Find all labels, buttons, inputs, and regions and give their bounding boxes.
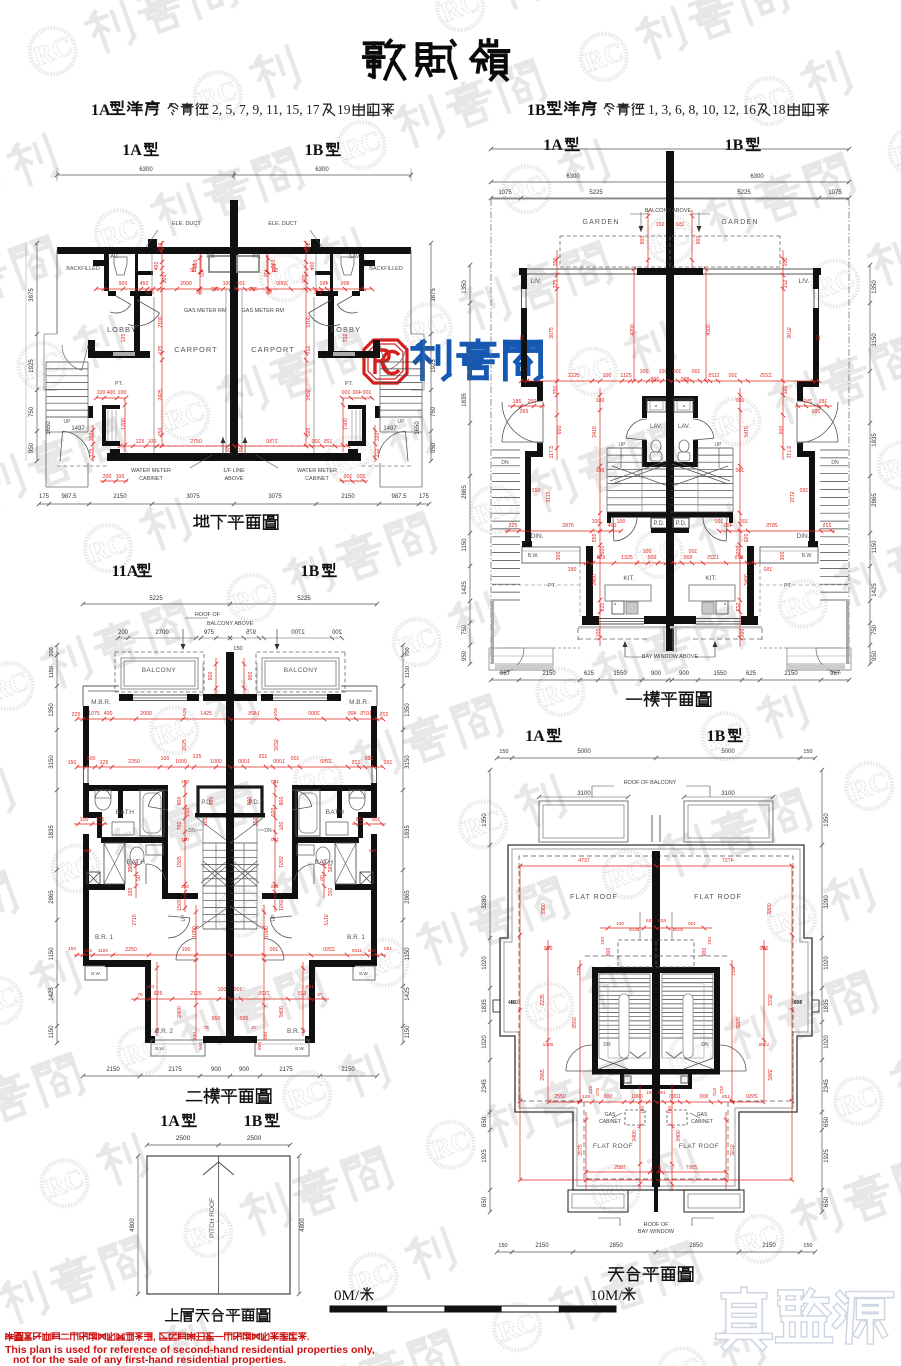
svg-text:2100: 2100 — [158, 316, 164, 328]
svg-text:100: 100 — [192, 1032, 198, 1040]
svg-text:3115: 3115 — [788, 491, 794, 502]
svg-text:BAY WINDOW ABOVE: BAY WINDOW ABOVE — [642, 654, 699, 660]
svg-text:625: 625 — [154, 991, 163, 997]
svg-text:3150: 3150 — [405, 755, 411, 769]
svg-text:1038: 1038 — [672, 927, 683, 933]
svg-text:900: 900 — [694, 236, 700, 245]
svg-text:2225: 2225 — [760, 373, 772, 379]
svg-text:PITCH ROOF: PITCH ROOF — [209, 1198, 216, 1238]
svg-text:BATH: BATH — [116, 809, 135, 816]
svg-text:200: 200 — [357, 474, 366, 480]
svg-text:125: 125 — [576, 968, 582, 976]
svg-text:125: 125 — [136, 439, 145, 445]
svg-text:125: 125 — [356, 817, 365, 823]
svg-text:117.5: 117.5 — [549, 446, 555, 459]
svg-text:125: 125 — [341, 334, 347, 343]
svg-text:1150: 1150 — [49, 666, 55, 678]
svg-text:650: 650 — [824, 1116, 830, 1127]
svg-text:225: 225 — [509, 523, 518, 529]
svg-text:LAV.: LAV. — [107, 254, 118, 260]
svg-text:PT.: PT. — [345, 381, 353, 387]
svg-text:.: . — [307, 1332, 310, 1342]
svg-text:75: 75 — [814, 335, 820, 341]
svg-text:100: 100 — [688, 921, 696, 927]
svg-text:1925: 1925 — [482, 1149, 488, 1163]
svg-text:175: 175 — [146, 290, 155, 296]
svg-text:2150: 2150 — [535, 1243, 549, 1249]
svg-text:KIT.: KIT. — [705, 575, 716, 582]
svg-text:900: 900 — [700, 1094, 709, 1100]
svg-text:UP: UP — [398, 419, 406, 425]
svg-text:CARPORT: CARPORT — [251, 345, 295, 354]
svg-text:2575: 2575 — [728, 1144, 734, 1156]
svg-text:450: 450 — [320, 281, 329, 287]
svg-text:1A: 1A — [91, 102, 111, 119]
svg-text:100: 100 — [689, 549, 698, 555]
svg-text:1325: 1325 — [621, 555, 633, 561]
svg-text:0M/: 0M/ — [334, 1288, 360, 1304]
svg-text:1650: 1650 — [46, 421, 52, 435]
svg-text:400: 400 — [724, 523, 733, 529]
svg-text:P.D.: P.D. — [249, 800, 260, 806]
svg-text:150: 150 — [499, 749, 508, 755]
svg-text:1075: 1075 — [498, 190, 512, 196]
svg-text:UP: UP — [181, 914, 187, 922]
svg-text:300: 300 — [300, 275, 306, 284]
svg-text:DIN.: DIN. — [797, 533, 810, 540]
svg-text:1325: 1325 — [707, 555, 719, 561]
svg-text:900: 900 — [651, 671, 662, 677]
svg-text:100: 100 — [118, 390, 127, 396]
svg-text:1000: 1000 — [631, 1094, 643, 1100]
svg-text:3075: 3075 — [268, 494, 282, 500]
svg-text:1565: 1565 — [277, 856, 283, 868]
svg-text:1B: 1B — [305, 142, 324, 159]
svg-text:1038: 1038 — [629, 927, 640, 933]
svg-text:100: 100 — [181, 884, 189, 890]
svg-text:100: 100 — [116, 474, 125, 480]
svg-text:150: 150 — [89, 433, 95, 442]
svg-text:100: 100 — [673, 369, 682, 375]
svg-text:265: 265 — [520, 409, 529, 415]
svg-text:2965: 2965 — [766, 1069, 772, 1081]
svg-text:2235: 2235 — [540, 994, 546, 1006]
svg-text:2550: 2550 — [746, 1094, 758, 1100]
svg-text:2150: 2150 — [762, 1243, 776, 1249]
svg-text:125: 125 — [203, 818, 209, 827]
svg-text:800: 800 — [700, 948, 706, 957]
svg-text:150: 150 — [68, 760, 77, 766]
svg-text:625: 625 — [298, 991, 307, 997]
svg-text:1835: 1835 — [49, 825, 55, 839]
svg-text:1425: 1425 — [405, 987, 411, 1001]
svg-text:1350: 1350 — [49, 703, 55, 717]
svg-text:175: 175 — [39, 494, 50, 500]
svg-text:150: 150 — [803, 1243, 812, 1249]
svg-text:ROOF OF BALCONY: ROOF OF BALCONY — [624, 780, 677, 786]
svg-text:125: 125 — [304, 346, 310, 355]
svg-text:2250: 2250 — [128, 759, 140, 765]
svg-text:100: 100 — [666, 1106, 672, 1114]
svg-text:950: 950 — [212, 1016, 221, 1022]
svg-text:P.D.: P.D. — [252, 254, 261, 260]
svg-text:5225: 5225 — [589, 190, 603, 196]
svg-text:5000: 5000 — [721, 749, 735, 755]
svg-text:600: 600 — [557, 426, 563, 435]
svg-text:200: 200 — [331, 630, 342, 636]
svg-text:125: 125 — [730, 968, 736, 976]
svg-text:P.D: P.D — [201, 800, 211, 806]
svg-text:1125: 1125 — [708, 373, 719, 379]
svg-text:UP: UP — [271, 914, 277, 922]
svg-text:2575: 2575 — [578, 1144, 584, 1156]
svg-text:900: 900 — [246, 672, 252, 681]
svg-text:1650: 1650 — [415, 421, 421, 435]
svg-text:B.R. 1: B.R. 1 — [347, 934, 365, 941]
svg-text:750: 750 — [462, 624, 468, 635]
svg-text:1835: 1835 — [824, 999, 830, 1013]
svg-text:2000: 2000 — [276, 281, 288, 287]
svg-text:150: 150 — [656, 222, 665, 228]
svg-text:100: 100 — [640, 369, 649, 375]
svg-text:2250: 2250 — [320, 759, 332, 765]
svg-text:700: 700 — [405, 647, 411, 656]
svg-text:KIT.: KIT. — [623, 575, 634, 582]
svg-text:2425: 2425 — [304, 389, 310, 401]
svg-text:450: 450 — [508, 1000, 517, 1006]
svg-text:700: 700 — [277, 822, 283, 831]
svg-text:ELE. DUCT: ELE. DUCT — [172, 221, 201, 227]
svg-text:1050: 1050 — [192, 926, 198, 938]
svg-text:2850: 2850 — [609, 1243, 623, 1249]
svg-text:900: 900 — [211, 1067, 222, 1073]
svg-text:DN: DN — [603, 1042, 611, 1048]
svg-text:1350: 1350 — [824, 813, 830, 827]
svg-text:325: 325 — [84, 948, 92, 954]
svg-text:2150: 2150 — [113, 494, 127, 500]
svg-text:225: 225 — [380, 712, 389, 718]
svg-text:3900: 3900 — [765, 903, 771, 915]
svg-text:100: 100 — [80, 817, 89, 823]
svg-text:625: 625 — [735, 555, 744, 561]
svg-text:ABOVE: ABOVE — [225, 476, 244, 482]
svg-text:3075: 3075 — [186, 494, 200, 500]
svg-text:950: 950 — [462, 650, 468, 661]
svg-text:500: 500 — [684, 555, 693, 561]
svg-text:600: 600 — [777, 426, 783, 435]
svg-text:1835: 1835 — [405, 825, 411, 839]
svg-text:1125: 1125 — [620, 373, 631, 379]
svg-text:100: 100 — [270, 947, 279, 953]
svg-text:50: 50 — [262, 271, 268, 277]
svg-text:900: 900 — [679, 671, 690, 677]
svg-text:75: 75 — [251, 1025, 257, 1031]
svg-text:1075: 1075 — [88, 711, 100, 717]
svg-text:50: 50 — [136, 875, 142, 881]
svg-text:,: , — [153, 1332, 156, 1342]
svg-text:1A: 1A — [525, 728, 545, 745]
svg-text:BACKFILLED: BACKFILLED — [369, 266, 403, 272]
svg-text:987.5: 987.5 — [391, 494, 407, 500]
svg-text:2175: 2175 — [279, 1067, 293, 1073]
svg-text:2000: 2000 — [180, 281, 192, 287]
svg-text:200: 200 — [49, 647, 55, 656]
svg-text:400: 400 — [353, 390, 362, 396]
svg-text:2625: 2625 — [182, 739, 188, 751]
svg-text:19: 19 — [337, 102, 351, 117]
svg-text:500: 500 — [256, 1042, 262, 1050]
svg-text:CABINET: CABINET — [305, 476, 329, 482]
svg-text:1835: 1835 — [482, 999, 488, 1013]
svg-text:1B: 1B — [527, 102, 546, 119]
svg-text:2400: 2400 — [592, 574, 598, 586]
svg-text:1B: 1B — [725, 137, 744, 154]
svg-text:200: 200 — [158, 243, 164, 252]
svg-text:1425: 1425 — [200, 711, 212, 717]
svg-text:500: 500 — [648, 555, 657, 561]
svg-text:10M/: 10M/ — [590, 1288, 623, 1304]
svg-text:100: 100 — [736, 398, 745, 404]
svg-text:100: 100 — [291, 756, 300, 762]
svg-text:900: 900 — [119, 281, 128, 287]
svg-text:ROOF OF: ROOF OF — [195, 612, 221, 618]
svg-text:100: 100 — [596, 629, 602, 638]
svg-text:6300: 6300 — [566, 174, 580, 180]
svg-text:CABINET: CABINET — [139, 476, 163, 482]
svg-text:FLAT ROOF: FLAT ROOF — [694, 894, 742, 901]
svg-text:150: 150 — [233, 646, 242, 652]
svg-text:100: 100 — [181, 779, 189, 785]
svg-text:B.W.: B.W. — [295, 1046, 305, 1051]
svg-text:GAS METER RM: GAS METER RM — [184, 308, 227, 314]
svg-text:185: 185 — [819, 399, 828, 405]
svg-text:2410: 2410 — [592, 426, 598, 438]
svg-text:1A: 1A — [160, 1113, 180, 1130]
svg-text:50: 50 — [237, 448, 243, 454]
svg-text:150: 150 — [304, 428, 310, 437]
svg-text:100: 100 — [237, 281, 246, 287]
svg-text:DIN.: DIN. — [531, 533, 544, 540]
svg-text:2175: 2175 — [168, 1067, 182, 1073]
svg-text:2587: 2587 — [686, 1165, 698, 1171]
svg-text:2150: 2150 — [341, 1067, 355, 1073]
svg-text:4200: 4200 — [630, 324, 636, 336]
svg-text:800: 800 — [651, 377, 660, 383]
svg-text:2, 5, 7, 9, 11, 15, 17: 2, 5, 7, 9, 11, 15, 17 — [212, 102, 320, 117]
svg-text:950: 950 — [872, 650, 878, 661]
svg-text:100: 100 — [592, 519, 601, 525]
svg-text:750: 750 — [431, 406, 437, 417]
svg-text:PT.: PT. — [115, 381, 123, 387]
svg-text:525: 525 — [182, 708, 188, 716]
svg-text:BALCONY: BALCONY — [284, 667, 319, 674]
svg-text:1020: 1020 — [482, 1035, 488, 1049]
svg-text:50: 50 — [200, 271, 206, 277]
svg-text:300: 300 — [556, 552, 562, 561]
svg-text:100: 100 — [600, 546, 606, 555]
svg-text:1/F LINE: 1/F LINE — [223, 468, 245, 474]
svg-text:1B: 1B — [301, 563, 320, 580]
svg-text:1425: 1425 — [462, 581, 468, 595]
svg-text:100: 100 — [218, 987, 227, 993]
svg-text:200: 200 — [304, 243, 310, 252]
svg-text:18: 18 — [772, 102, 786, 117]
svg-text:LIV.: LIV. — [531, 278, 542, 285]
svg-text:50: 50 — [318, 875, 324, 881]
svg-text:1350: 1350 — [462, 280, 468, 294]
svg-text:2250: 2250 — [125, 947, 137, 953]
svg-text:100: 100 — [600, 937, 606, 945]
svg-text:GAS METER RM: GAS METER RM — [242, 308, 285, 314]
svg-text:2150: 2150 — [542, 671, 556, 677]
svg-text:LAV.: LAV. — [650, 424, 662, 430]
svg-text:150: 150 — [373, 433, 379, 442]
svg-text:UP: UP — [715, 442, 723, 448]
svg-text:3150: 3150 — [49, 755, 55, 769]
svg-text:375: 375 — [711, 1088, 717, 1096]
svg-text:900: 900 — [208, 672, 214, 681]
svg-text:250: 250 — [528, 399, 537, 405]
svg-text:FLAT ROOF: FLAT ROOF — [570, 894, 618, 901]
svg-text:750: 750 — [249, 287, 258, 293]
svg-text:WATER METER: WATER METER — [131, 468, 171, 474]
svg-text:300: 300 — [365, 756, 374, 762]
svg-text:1150: 1150 — [49, 947, 55, 961]
svg-text:1100: 1100 — [98, 948, 109, 954]
svg-text:175: 175 — [419, 494, 430, 500]
svg-text:1100: 1100 — [352, 948, 363, 954]
svg-text:250: 250 — [553, 386, 559, 395]
svg-text:6300: 6300 — [750, 174, 764, 180]
svg-text:100: 100 — [596, 468, 605, 474]
svg-text:3675: 3675 — [785, 327, 791, 339]
svg-text:987.5: 987.5 — [61, 494, 77, 500]
svg-text:DN: DN — [264, 828, 272, 834]
svg-text:1350: 1350 — [482, 813, 488, 827]
svg-text:3900: 3900 — [541, 903, 547, 915]
svg-text:3115: 3115 — [546, 491, 552, 502]
svg-text:2865: 2865 — [872, 493, 878, 507]
svg-text:B.R. 1: B.R. 1 — [95, 934, 113, 941]
svg-text:3550: 3550 — [572, 1017, 578, 1029]
svg-text:800: 800 — [277, 797, 283, 806]
svg-text:2500: 2500 — [247, 1135, 262, 1142]
svg-text:500: 500 — [198, 1042, 204, 1050]
svg-text:250: 250 — [185, 808, 191, 817]
svg-text:75: 75 — [317, 992, 323, 998]
svg-text:2410: 2410 — [742, 426, 748, 438]
svg-text:375: 375 — [781, 280, 787, 289]
svg-text:B.W.: B.W. — [802, 553, 813, 559]
svg-text:100: 100 — [658, 1090, 666, 1096]
svg-text:P.D.: P.D. — [676, 521, 687, 527]
svg-text:125: 125 — [193, 754, 202, 760]
svg-text:250: 250 — [781, 386, 787, 395]
svg-text:1150: 1150 — [405, 947, 411, 961]
svg-text:150: 150 — [384, 760, 393, 766]
svg-text:375: 375 — [553, 280, 559, 289]
svg-text:1550: 1550 — [613, 671, 627, 677]
svg-text:400: 400 — [348, 711, 357, 717]
svg-text:100: 100 — [734, 546, 740, 555]
svg-text:P.D.: P.D. — [654, 521, 665, 527]
svg-text:BATH: BATH — [127, 859, 146, 866]
svg-text:625: 625 — [584, 671, 595, 677]
svg-text:125: 125 — [656, 1166, 662, 1174]
svg-text:100: 100 — [736, 468, 745, 474]
svg-text:100: 100 — [271, 837, 279, 843]
svg-text:3550: 3550 — [734, 1017, 740, 1029]
svg-text:750: 750 — [211, 287, 220, 293]
svg-text:175: 175 — [314, 290, 323, 296]
svg-text:B.W.: B.W. — [359, 971, 369, 976]
svg-text:100: 100 — [640, 1106, 646, 1114]
svg-text:1925: 1925 — [29, 359, 35, 373]
svg-text:2587: 2587 — [614, 1165, 626, 1171]
svg-text:150: 150 — [68, 946, 76, 952]
svg-text:2965: 2965 — [540, 1069, 546, 1081]
svg-text:BATH: BATH — [315, 859, 334, 866]
svg-text:DN: DN — [188, 828, 196, 834]
svg-text:GARDEN: GARDEN — [721, 219, 758, 226]
svg-text:1425: 1425 — [49, 987, 55, 1001]
svg-text:M.B.R.: M.B.R. — [349, 699, 369, 706]
svg-text:BALCONY ABOVE: BALCONY ABOVE — [645, 208, 692, 214]
svg-text:100: 100 — [161, 756, 170, 762]
svg-text:550: 550 — [270, 264, 276, 273]
svg-text:CABINET: CABINET — [599, 1119, 621, 1125]
svg-text:BAY WINDOW: BAY WINDOW — [638, 1229, 675, 1235]
svg-text:1A: 1A — [543, 137, 563, 154]
svg-text:GARDEN: GARDEN — [582, 219, 619, 226]
svg-text:100: 100 — [706, 937, 712, 945]
svg-text:B.W.: B.W. — [91, 971, 101, 976]
svg-text:5000: 5000 — [577, 749, 591, 755]
svg-text:125: 125 — [718, 1086, 724, 1094]
svg-text:625: 625 — [746, 671, 757, 677]
svg-text:100: 100 — [729, 373, 738, 379]
svg-text:CARPORT: CARPORT — [174, 345, 218, 354]
svg-text:5225: 5225 — [149, 596, 163, 602]
svg-text:1565: 1565 — [177, 856, 183, 868]
svg-text:75: 75 — [137, 992, 143, 998]
svg-text:2100: 2100 — [304, 316, 310, 328]
svg-text:100: 100 — [342, 390, 351, 396]
svg-text:1000: 1000 — [273, 759, 285, 765]
svg-text:550: 550 — [192, 264, 198, 273]
svg-text:2750: 2750 — [266, 439, 278, 445]
svg-text:2875: 2875 — [562, 523, 574, 529]
svg-text:1925: 1925 — [431, 359, 437, 373]
svg-text:225: 225 — [72, 712, 81, 718]
svg-text:265: 265 — [812, 409, 821, 415]
svg-text:400: 400 — [308, 262, 314, 271]
svg-text:1497: 1497 — [383, 426, 397, 432]
svg-text:200: 200 — [553, 258, 559, 267]
svg-text:900: 900 — [341, 281, 350, 287]
svg-text:100: 100 — [596, 398, 605, 404]
svg-text:2700: 2700 — [155, 630, 169, 636]
svg-text:1, 3, 6, 8, 10, 12, 16: 1, 3, 6, 8, 10, 12, 16 — [648, 102, 756, 117]
svg-text:GAS: GAS — [697, 1112, 708, 1118]
svg-text:2865: 2865 — [49, 890, 55, 904]
svg-text:375: 375 — [595, 1088, 601, 1096]
svg-text:LOBBY: LOBBY — [331, 325, 361, 334]
svg-text:LAV.: LAV. — [349, 254, 360, 260]
svg-text:1565: 1565 — [277, 899, 283, 911]
svg-text:400: 400 — [608, 523, 617, 529]
svg-text:4200: 4200 — [704, 324, 710, 336]
